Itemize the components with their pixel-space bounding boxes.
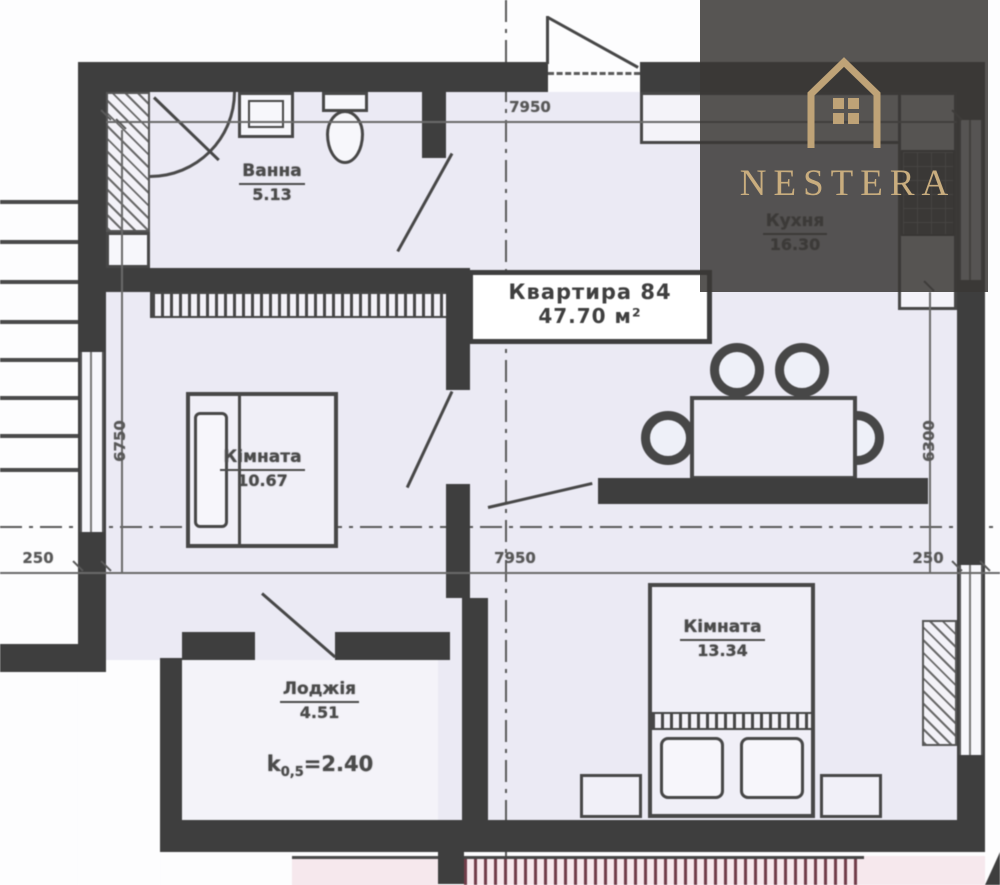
room-name: Кімната [680,616,764,641]
wall-segment [422,92,446,158]
coef-sub: 0,5 [281,765,304,780]
vent-shaft-hatch [106,92,150,232]
lower-unit-room [292,856,438,885]
horizontal-centerline [0,526,1000,528]
brand-name: NESTERA [733,162,956,205]
chair-icon [710,343,764,397]
dimension-label: 250 [18,549,58,567]
room-area: 5.13 [212,185,332,206]
apartment-area: 47.70 м² [473,304,707,328]
outside-area-left-of-loggia [106,660,160,885]
dimension-label: 6750 [111,416,129,466]
nightstand-icon [580,774,642,818]
wall-segment [106,268,470,292]
dimension-line-middle [0,572,1000,574]
wall-segment [462,598,488,852]
room-label-bedroom-left: Кімната 10.67 [200,446,325,492]
lower-unit-room [864,856,985,885]
entrance-door-jamb [546,16,549,64]
wall-segment [446,268,470,390]
house-logo-icon [789,50,899,150]
chair-icon [641,411,695,465]
wall-segment [182,632,255,660]
apartment-info-box: Квартира 84 47.70 м² [468,270,712,344]
brand-watermark: NESTERA [700,0,988,292]
sink-basin [248,100,284,128]
shaft-box [106,232,150,268]
room-name: Ванна [239,160,304,185]
dimension-label: 250 [908,549,948,567]
wall-pier [438,820,464,884]
room-label-bedroom-right: Кімната 13.34 [660,616,785,662]
stair-tread [0,434,78,438]
apartment-title: Квартира 84 [473,280,707,304]
stair-tread [0,320,78,324]
stair-tread [0,200,78,204]
toilet-tank-icon [322,92,368,112]
pillow-icon [660,737,724,799]
stair-tread [0,396,78,400]
wall-corner-wedge [985,852,1000,885]
dimension-line-left [121,130,123,572]
coef-k: k [267,752,281,776]
room-name: Лоджія [280,678,359,703]
loggia-coefficient: k0,5=2.40 [250,752,390,780]
wall-segment [160,820,985,852]
room-label-loggia: Лоджія 4.51 [262,678,377,724]
dining-table-icon [690,396,857,480]
room-label-bathroom: Ванна 5.13 [212,160,332,206]
wall-segment [335,632,450,660]
entrance-door-leaf [547,16,639,69]
wall-segment [78,62,548,92]
wall-segment [160,658,182,820]
stair-tread [0,280,78,284]
bed-blanket-hatch [650,712,813,730]
window-icon [80,352,104,532]
vertical-centerline [505,0,507,885]
room-name: Кімната [220,446,304,471]
chair-icon [775,343,829,397]
window-icon [959,565,983,755]
room-area: 10.67 [200,471,325,492]
outside-area-below-left-wall [78,672,106,885]
dimension-label: 7950 [495,98,565,116]
stair-tread [0,468,78,472]
room-area: 13.34 [660,641,785,662]
floor-plan-screenshot: 7950 7950 250 250 6750 6300 Ванна 5.13 К… [0,0,1000,885]
room-area: 4.51 [262,703,377,724]
pillow-icon [740,737,804,799]
wall-segment [598,478,928,504]
wall-segment [446,484,470,598]
entrance-opening-dashed-line [548,72,640,75]
coef-value: =2.40 [304,752,373,776]
nightstand-icon [820,774,882,818]
wardrobe-hatch-strip [150,292,448,318]
wall-pier-hatch [922,620,957,746]
balcony-railing-hatch [464,856,864,885]
stair-tread [0,240,78,244]
dimension-label: 7950 [480,549,550,567]
dimension-label: 6300 [920,416,938,466]
stair-tread [0,358,78,362]
wall-segment [0,644,78,672]
